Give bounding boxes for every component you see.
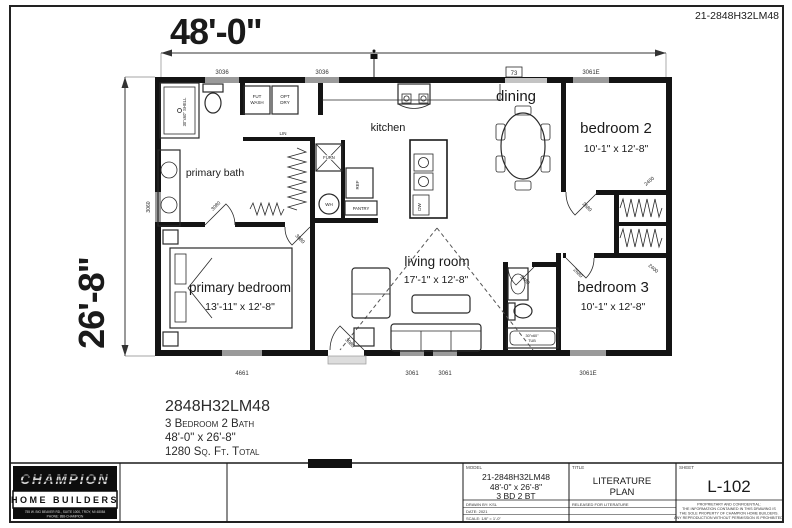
title-block-tag	[308, 459, 352, 468]
dining-table	[501, 113, 545, 179]
dimension-width: 48'-0"	[161, 11, 666, 77]
shower-label: 30"x60" SHELL	[182, 97, 187, 126]
title-cell: TITLE LITERATURE PLAN RELEASED FOR LITER…	[572, 465, 651, 507]
window-tag-dining: 73	[511, 71, 518, 77]
tub-label: 30"x60"	[525, 334, 539, 338]
coffee-table	[412, 295, 470, 313]
room-label-kitchen: kitchen	[371, 122, 406, 134]
model-header: MODEL	[466, 465, 483, 470]
primary-bedroom: primary bedroom 13'-11" x 12'-8"	[163, 230, 292, 346]
room-size-bedroom3: 10'-1" x 12'-8"	[581, 301, 646, 313]
dryer-label2: DRY	[280, 100, 289, 105]
door-tag-primary-bath: 3080	[210, 200, 222, 212]
dimension-width-label: 48'-0"	[170, 11, 262, 52]
row-date: DATE: 2021	[466, 509, 488, 514]
disclaimer-line1: PROPRIETARY AND CONFIDENTIAL:	[697, 503, 761, 507]
closet-rod-2	[250, 203, 284, 215]
summary-size: 48'-0" x 26'-8"	[165, 432, 236, 444]
sheet-header: SHEET	[679, 465, 694, 470]
door-tag-closet-top: 2400	[643, 176, 656, 188]
summary-model: 2848H32LM48	[165, 398, 270, 415]
title-row: RELEASED FOR LITERATURE	[572, 502, 629, 507]
window-tag: 4661	[235, 371, 249, 377]
dimension-depth-label: 26'-8"	[71, 257, 112, 349]
refrigerator-label: REF	[355, 180, 360, 189]
vanity	[158, 150, 180, 226]
window-tag: 3061	[438, 371, 452, 377]
window-tag: 3036	[215, 70, 229, 76]
washer-label2: WASH	[250, 100, 263, 105]
sheet-number: L-102	[707, 477, 750, 496]
room-size-primary-bedroom: 13'-11" x 12'-8"	[205, 301, 275, 313]
title-line1: LITERATURE	[593, 476, 651, 487]
bedroom2: bedroom 2 10'-1" x 12'-8"	[580, 120, 662, 217]
bath2-toilet	[514, 304, 532, 318]
roof-vent-marker	[371, 50, 378, 78]
door-tag-closet-bottom: 2400	[647, 263, 660, 275]
bedroom3: bedroom 3 10'-1" x 12'-8"	[577, 229, 662, 313]
plan-summary: 2848H32LM48 3 Bedroom 2 Bath 48'-0" x 26…	[165, 398, 270, 458]
primary-bath: 30"x60" SHELL FUT WASH OPT DRY primary b…	[158, 83, 306, 226]
sheet-code: 21-2848H32LM48	[695, 10, 779, 22]
summary-config: 3 Bedroom 2 Bath	[165, 418, 254, 430]
pantry-label: PANTRY	[353, 206, 370, 211]
linen-label: LIN	[279, 131, 286, 136]
dryer-label: OPT	[280, 94, 290, 99]
closet-rod	[288, 148, 306, 210]
water-heater-label: WH	[325, 202, 333, 207]
kitchen-island	[410, 140, 447, 218]
brand-sub: HOME BUILDERS	[11, 495, 119, 505]
toilet	[205, 93, 221, 113]
windows	[155, 77, 609, 356]
disclaimer-line4: ANY REPRODUCTION WITHOUT PERMISSION IS P…	[674, 516, 784, 520]
dining: dining	[496, 88, 550, 190]
title-line2: PLAN	[610, 487, 635, 498]
bath2: 30"x60" TUB	[507, 268, 558, 348]
row-scale: SCALE: 1/8" = 1'-0"	[466, 516, 501, 521]
furnace-label: FURN	[323, 155, 335, 160]
nightstand	[163, 230, 178, 244]
doors: 3080 3080 3080 2680 2680 2480 2400 2400	[205, 176, 659, 364]
utility-area: FURN WH REF PANTRY	[316, 144, 377, 215]
title-header: TITLE	[572, 465, 584, 470]
title-block: CHAMPION HOME BUILDERS 755 W. BIG BEAVER…	[10, 459, 784, 522]
door-tag-bedroom3: 2680	[572, 267, 584, 279]
sheet-cell: SHEET L-102 PROPRIETARY AND CONFIDENTIAL…	[674, 465, 784, 520]
shower	[160, 83, 199, 138]
brand-address1: 755 W. BIG BEAVER RD., SUITE 1000, TROY,…	[25, 510, 106, 514]
window-tag: 3061	[405, 371, 419, 377]
literature-plan-sheet: 21-2848H32LM48 48'-0" 26'-8"	[0, 0, 792, 528]
room-label-dining: dining	[496, 88, 536, 105]
room-label-bedroom2: bedroom 2	[580, 120, 652, 137]
room-size-bedroom2: 10'-1" x 12'-8"	[584, 143, 649, 155]
dimension-depth: 26'-8"	[71, 77, 155, 356]
disclaimer-line2: THE INFORMATION CONTAINED IN THIS DRAWIN…	[682, 507, 776, 511]
floor-plan-drawing: 21-2848H32LM48 48'-0" 26'-8"	[0, 0, 792, 528]
tub-label2: TUB	[528, 339, 536, 343]
dishwasher-label: DW	[417, 203, 422, 211]
closet-rod-bedroom3	[620, 229, 662, 247]
model-cell: MODEL 21-2848H32LM48 48'-0" x 26'-8" 3 B…	[466, 465, 550, 521]
summary-area: 1280 Sq. Ft. Total	[165, 446, 260, 458]
brand-name: CHAMPION	[20, 472, 110, 487]
window-tag: 3061E	[579, 371, 596, 377]
sofa	[391, 324, 481, 351]
door-tag-primary-bedroom: 3080	[294, 233, 306, 245]
brand-address2: PHONE: 888-CHAMPION	[47, 515, 84, 519]
window-tag-left-wall: 3060	[146, 201, 152, 212]
disclaimer-line3: THE SOLE PROPERTY OF CHAMPION HOME BUILD…	[679, 512, 778, 516]
model-config: 3 BD 2 BT	[496, 491, 535, 501]
closet-rod-bedroom2	[620, 199, 662, 217]
entry-step	[328, 356, 366, 364]
room-label-bedroom3: bedroom 3	[577, 279, 649, 296]
nightstand	[163, 332, 178, 346]
room-label-primary-bath: primary bath	[186, 167, 245, 179]
brand-logo: CHAMPION HOME BUILDERS 755 W. BIG BEAVER…	[11, 466, 119, 519]
room-label-primary-bedroom: primary bedroom	[189, 280, 291, 295]
room-size-living: 17'-1" x 12'-8"	[404, 274, 469, 286]
washer-label: FUT	[253, 94, 262, 99]
walls	[155, 77, 672, 356]
window-tag: 3036	[315, 70, 329, 76]
window-tag: 3061E	[582, 70, 599, 76]
toilet-tank	[203, 84, 223, 92]
row-drawn-by: DRAWN BY: KSL	[466, 502, 498, 507]
model-number: 21-2848H32LM48	[482, 472, 550, 482]
